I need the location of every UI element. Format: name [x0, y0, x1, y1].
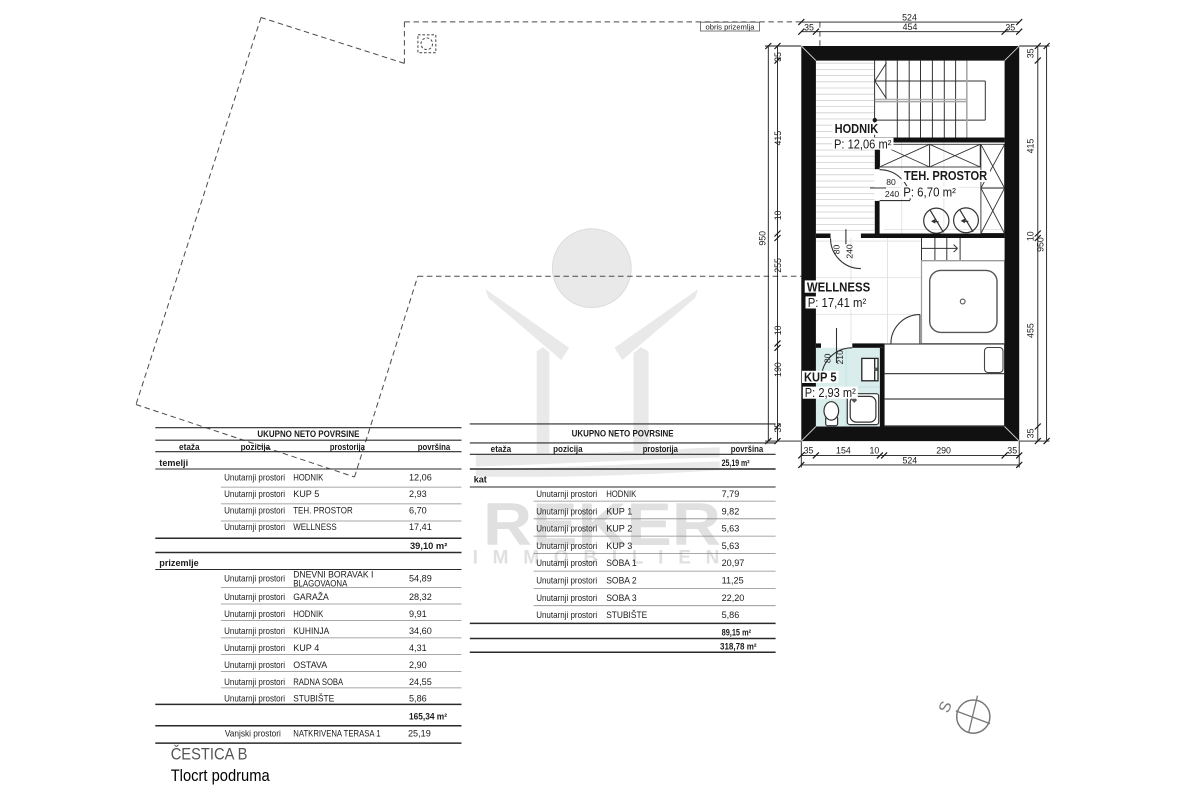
- svg-text:22,20: 22,20: [722, 593, 745, 603]
- svg-text:455: 455: [1026, 323, 1036, 338]
- svg-text:10: 10: [1026, 231, 1036, 241]
- svg-text:UKUPNO NETO POVRSINE: UKUPNO NETO POVRSINE: [572, 429, 674, 439]
- svg-text:STUBIŠTE: STUBIŠTE: [293, 693, 334, 703]
- svg-text:318,78 m²: 318,78 m²: [720, 641, 757, 651]
- svg-text:11,25: 11,25: [722, 576, 744, 586]
- svg-text:Unutarnji prostori: Unutarnji prostori: [224, 489, 285, 499]
- svg-text:WELLNESS: WELLNESS: [807, 281, 870, 295]
- svg-text:prostorija: prostorija: [330, 442, 366, 452]
- svg-text:24,55: 24,55: [409, 677, 432, 687]
- svg-text:290: 290: [936, 446, 951, 456]
- svg-text:240: 240: [845, 244, 855, 259]
- svg-text:Unutarnji prostori: Unutarnji prostori: [224, 693, 285, 703]
- svg-text:454: 454: [903, 22, 918, 32]
- svg-text:5,63: 5,63: [722, 524, 740, 534]
- svg-text:80: 80: [886, 177, 896, 187]
- svg-text:255: 255: [773, 258, 783, 273]
- svg-text:17,41: 17,41: [409, 522, 432, 532]
- svg-text:80: 80: [832, 245, 842, 255]
- svg-text:10: 10: [773, 210, 783, 220]
- svg-text:35: 35: [804, 446, 814, 456]
- svg-text:154: 154: [836, 446, 851, 456]
- svg-text:HODNIK: HODNIK: [293, 609, 323, 619]
- svg-text:KUHINJA: KUHINJA: [293, 626, 330, 636]
- svg-text:190: 190: [773, 362, 783, 377]
- svg-text:P: 2,93 m²: P: 2,93 m²: [805, 386, 856, 400]
- svg-text:Unutarnji prostori: Unutarnji prostori: [224, 506, 285, 516]
- svg-text:210: 210: [835, 350, 845, 365]
- svg-text:etaža: etaža: [491, 444, 512, 454]
- svg-text:površina: površina: [418, 442, 451, 452]
- svg-text:950: 950: [758, 231, 768, 246]
- svg-text:BLAGOVAONA: BLAGOVAONA: [293, 578, 348, 588]
- svg-text:HODNIK: HODNIK: [835, 122, 879, 136]
- svg-text:kat: kat: [474, 475, 487, 485]
- svg-text:pozicija: pozicija: [553, 444, 583, 454]
- svg-text:240: 240: [885, 189, 900, 199]
- svg-text:P: 17,41 m²: P: 17,41 m²: [808, 296, 867, 310]
- svg-text:obris prizemlja: obris prizemlja: [706, 22, 756, 31]
- svg-text:KUP 2: KUP 2: [606, 524, 632, 534]
- svg-text:415: 415: [1026, 139, 1036, 154]
- svg-text:temelji: temelji: [159, 458, 188, 468]
- svg-text:950: 950: [1035, 237, 1045, 252]
- svg-text:35: 35: [1026, 428, 1036, 438]
- svg-text:Unutarnji prostori: Unutarnji prostori: [224, 643, 285, 653]
- svg-text:RADNA SOBA: RADNA SOBA: [293, 677, 344, 687]
- svg-text:NATKRIVENA TERASA 1: NATKRIVENA TERASA 1: [293, 729, 380, 739]
- svg-text:pozicija: pozicija: [241, 442, 271, 452]
- svg-text:25,19 m²: 25,19 m²: [722, 458, 750, 468]
- svg-text:35: 35: [773, 52, 783, 62]
- svg-text:34,60: 34,60: [409, 626, 432, 636]
- svg-text:Unutarnji prostori: Unutarnji prostori: [224, 574, 285, 584]
- svg-text:80: 80: [823, 353, 833, 363]
- svg-text:prostorija: prostorija: [643, 444, 679, 454]
- svg-text:12,06: 12,06: [409, 472, 432, 482]
- svg-text:SOBA 2: SOBA 2: [606, 576, 637, 586]
- svg-text:165,34 m²: 165,34 m²: [409, 712, 447, 722]
- svg-text:S: S: [936, 699, 956, 715]
- svg-text:39,10 m²: 39,10 m²: [410, 541, 447, 551]
- svg-text:KUP 1: KUP 1: [606, 506, 632, 516]
- svg-text:Unutarnji prostori: Unutarnji prostori: [224, 677, 285, 687]
- svg-text:Unutarnji prostori: Unutarnji prostori: [224, 472, 285, 482]
- svg-text:STUBIŠTE: STUBIŠTE: [606, 610, 647, 620]
- svg-text:Unutarnji prostori: Unutarnji prostori: [224, 522, 285, 532]
- svg-text:Unutarnji prostori: Unutarnji prostori: [536, 593, 597, 603]
- svg-text:89,15 m²: 89,15 m²: [722, 627, 752, 637]
- svg-text:ČESTICA B: ČESTICA B: [171, 745, 248, 764]
- svg-text:7,79: 7,79: [722, 489, 740, 499]
- svg-text:6,70: 6,70: [409, 506, 427, 516]
- svg-text:Unutarnji prostori: Unutarnji prostori: [536, 576, 597, 586]
- svg-text:KUP 3: KUP 3: [606, 541, 632, 551]
- svg-text:5,86: 5,86: [722, 610, 740, 620]
- svg-text:SOBA 1: SOBA 1: [606, 558, 637, 568]
- svg-text:Unutarnji prostori: Unutarnji prostori: [536, 558, 597, 568]
- svg-text:35: 35: [1007, 446, 1017, 456]
- svg-text:etaža: etaža: [179, 442, 200, 452]
- svg-text:25,19: 25,19: [408, 729, 431, 739]
- svg-text:P: 12,06 m²: P: 12,06 m²: [834, 137, 891, 151]
- svg-text:54,89: 54,89: [409, 573, 432, 583]
- svg-text:Unutarnji prostori: Unutarnji prostori: [536, 489, 597, 499]
- svg-text:Unutarnji prostori: Unutarnji prostori: [536, 610, 597, 620]
- svg-text:Unutarnji prostori: Unutarnji prostori: [224, 592, 285, 602]
- svg-text:10: 10: [773, 325, 783, 335]
- svg-text:5,86: 5,86: [409, 693, 427, 703]
- svg-text:35: 35: [804, 22, 814, 32]
- svg-text:P: 6,70 m²: P: 6,70 m²: [903, 186, 956, 200]
- svg-text:524: 524: [902, 455, 917, 465]
- svg-text:5,63: 5,63: [722, 541, 740, 551]
- svg-text:20,97: 20,97: [722, 558, 745, 568]
- svg-text:KUP 4: KUP 4: [293, 643, 319, 653]
- svg-text:Unutarnji prostori: Unutarnji prostori: [536, 506, 597, 516]
- svg-text:415: 415: [773, 131, 783, 146]
- svg-text:KUP 5: KUP 5: [293, 489, 319, 499]
- svg-text:2,90: 2,90: [409, 660, 427, 670]
- svg-text:TEH. PROSTOR: TEH. PROSTOR: [293, 506, 353, 516]
- svg-text:4,31: 4,31: [409, 643, 427, 653]
- svg-text:2,93: 2,93: [409, 489, 427, 499]
- svg-text:Unutarnji prostori: Unutarnji prostori: [224, 609, 285, 619]
- svg-text:SOBA 3: SOBA 3: [606, 593, 637, 603]
- svg-text:prizemlje: prizemlje: [159, 558, 198, 568]
- svg-text:Unutarnji prostori: Unutarnji prostori: [224, 626, 285, 636]
- svg-text:Unutarnji prostori: Unutarnji prostori: [536, 524, 597, 534]
- svg-text:UKUPNO NETO POVRSINE: UKUPNO NETO POVRSINE: [257, 429, 359, 439]
- svg-text:WELLNESS: WELLNESS: [293, 522, 337, 532]
- svg-text:35: 35: [1005, 22, 1015, 32]
- svg-text:35: 35: [1026, 48, 1036, 58]
- svg-text:524: 524: [902, 12, 917, 22]
- svg-text:Vanjski prostori: Vanjski prostori: [225, 729, 281, 739]
- svg-text:9,91: 9,91: [409, 609, 427, 619]
- svg-text:9,82: 9,82: [722, 506, 740, 516]
- svg-text:Tlocrt podruma: Tlocrt podruma: [171, 766, 270, 785]
- svg-text:28,32: 28,32: [409, 592, 432, 602]
- svg-text:površina: površina: [731, 444, 764, 454]
- svg-text:10: 10: [870, 446, 880, 456]
- svg-text:OSTAVA: OSTAVA: [293, 660, 328, 670]
- svg-text:TEH. PROSTOR: TEH. PROSTOR: [904, 169, 987, 183]
- svg-text:Unutarnji prostori: Unutarnji prostori: [536, 541, 597, 551]
- svg-text:KUP 5: KUP 5: [804, 370, 837, 384]
- svg-text:HODNIK: HODNIK: [293, 472, 323, 482]
- svg-text:GARAŽA: GARAŽA: [293, 592, 329, 602]
- svg-text:HODNIK: HODNIK: [606, 489, 636, 499]
- svg-text:Unutarnji prostori: Unutarnji prostori: [224, 660, 285, 670]
